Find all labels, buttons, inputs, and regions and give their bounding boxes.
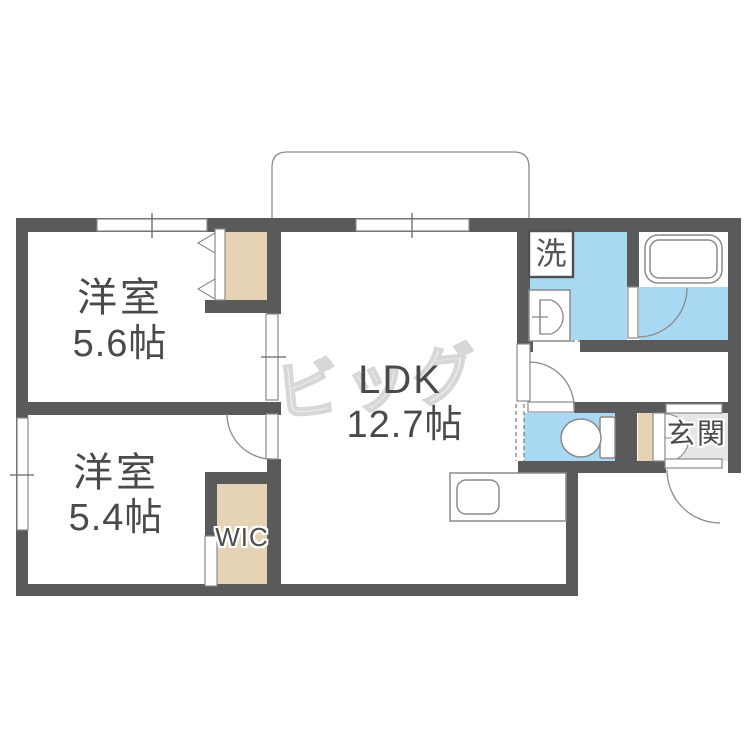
laundry-label: 洗: [536, 239, 567, 270]
bedroom2-window: [17, 418, 28, 530]
wall-closet-bottom: [205, 300, 281, 313]
shoe-cabinet-door-strip: [653, 413, 665, 461]
wall-bottom-right: [518, 461, 666, 473]
balcony-outline: [272, 152, 529, 219]
ldk-hallway-opening: [517, 344, 530, 401]
bedroom2-door-leaf: [266, 414, 278, 459]
floor-plan: ビッグ: [0, 0, 750, 750]
wall-between-bedrooms: [16, 402, 281, 415]
shoe-cabinet-fill: [638, 413, 653, 461]
toilet-tank: [600, 417, 615, 458]
wic-label: WIC: [215, 524, 269, 550]
toilet-bowl: [561, 419, 601, 457]
bedroom2-door-swing: [227, 414, 272, 459]
bathroom-floor: [639, 287, 728, 340]
wall-bath-divider: [627, 230, 639, 287]
bedroom1-size-label: 5.6帖: [73, 325, 168, 363]
toilet-door-leaf: [528, 402, 574, 412]
closet-folding-door-arrow-top: [198, 233, 215, 253]
washroom-entry-opening: [533, 341, 580, 352]
wall-kitchen-side: [566, 461, 578, 596]
ldk-size-label: 12.7帖: [347, 406, 464, 444]
wall-toilet-top: [574, 402, 637, 413]
closet-folding-door-arrow-bottom: [198, 279, 215, 299]
bedroom1-closet-fill: [225, 229, 267, 300]
wall-sanitary-bottom: [580, 340, 741, 352]
entrance-door-leaf: [665, 459, 722, 468]
entrance-door-swing: [667, 470, 720, 523]
bedroom2-name-label: 洋室: [73, 453, 159, 493]
bedroom2-size-label: 5.4帖: [69, 499, 164, 537]
kitchen-sink: [457, 480, 499, 514]
entrance-step-edge: [666, 404, 722, 413]
toilet-left-partition: [516, 404, 524, 461]
bedroom1-name-label: 洋室: [77, 278, 163, 318]
wall-bottom: [16, 584, 578, 596]
closet-door-strip: [215, 229, 225, 300]
entrance-label: 玄関: [667, 420, 727, 448]
bathtub-inner: [650, 240, 717, 278]
toilet-door-swing: [529, 362, 574, 407]
wall-toilet-right: [615, 413, 637, 461]
ldk-name-label: LDK: [358, 360, 442, 400]
bathroom-door-leaf: [628, 287, 638, 338]
